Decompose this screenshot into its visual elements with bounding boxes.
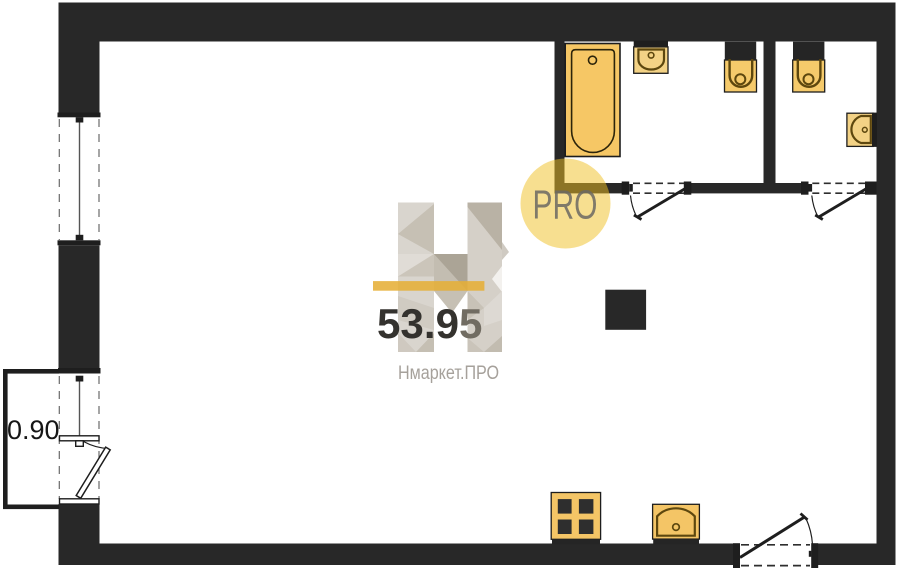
svg-text:5: 5	[459, 300, 482, 347]
svg-text:53.9: 53.9	[377, 300, 459, 347]
svg-text:PRO: PRO	[533, 182, 598, 228]
svg-text:Нмаркет.ПРО: Нмаркет.ПРО	[398, 363, 499, 384]
svg-text:0.90: 0.90	[7, 415, 60, 445]
